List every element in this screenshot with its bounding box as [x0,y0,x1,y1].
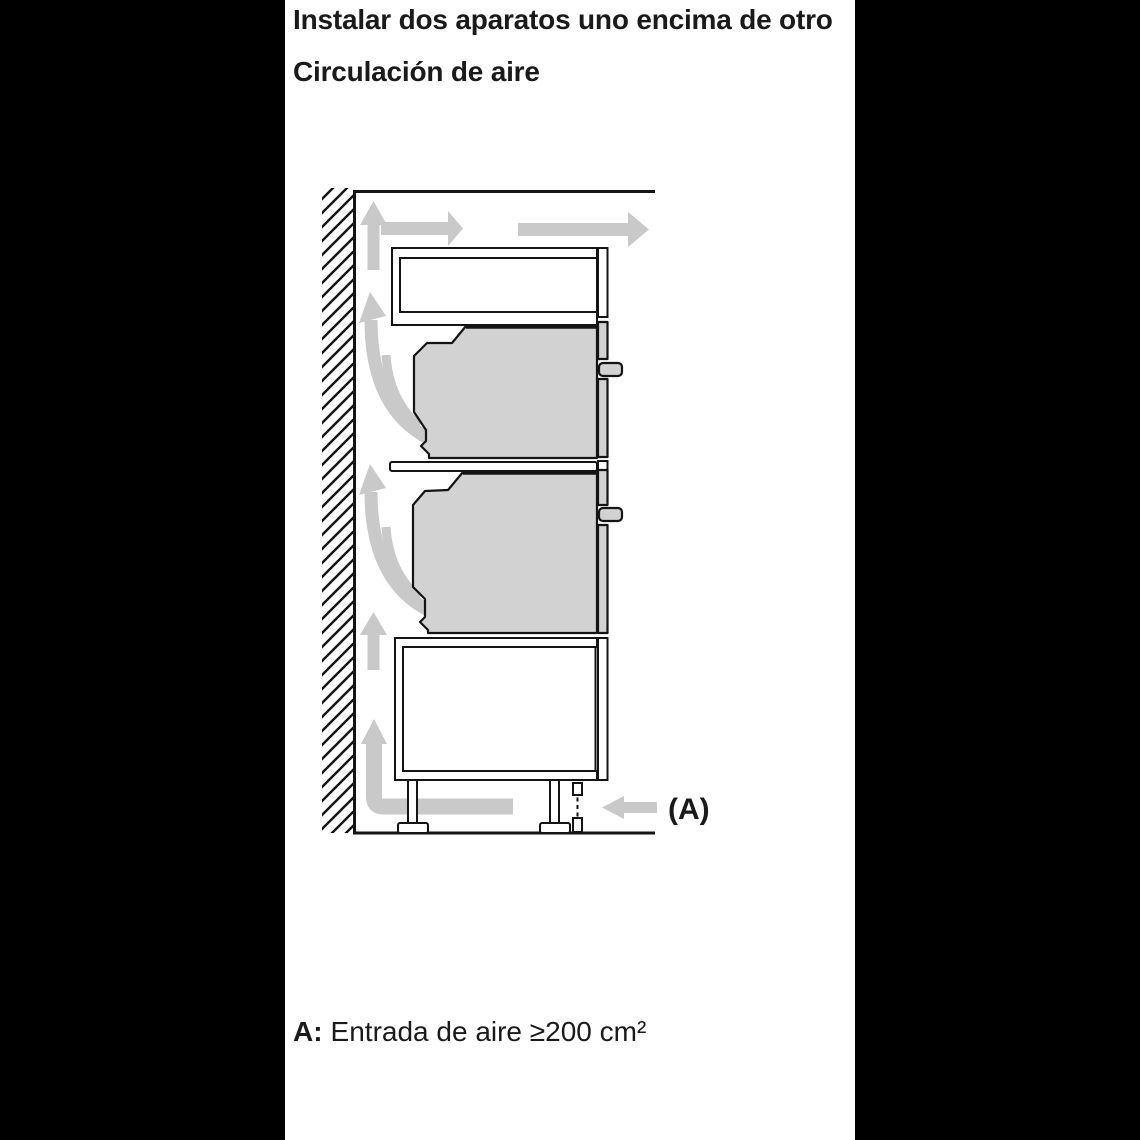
airflow-curve-upper-head [359,292,386,323]
right-black-bar [855,0,1140,1140]
cabinet-foot-right [540,823,570,833]
lower-appliance-door-bottom [598,525,608,633]
base-cabinet-front-frame [598,638,608,780]
middle-shelf [390,462,597,471]
top-cabinet [392,248,597,325]
caption-key: A: [293,1016,323,1047]
wall-hatching [322,188,355,833]
caption: A:Entrada de aire ≥200 cm² [293,1016,646,1048]
cabinet-foot-left [398,823,428,833]
airflow-curve-lower-head [359,464,386,495]
upper-appliance-door-bottom [598,379,608,457]
airflow-arrow-right-small [381,211,463,246]
airflow-arrow-up-middle [360,612,387,670]
page-content: Instalar dos aparatos uno encima de otro… [285,0,855,1140]
lower-appliance-knob [599,508,622,521]
air-inlet-marker-top [573,783,582,795]
airflow-arrow-up-top [360,201,387,270]
upper-appliance-door-top [598,322,608,359]
airflow-diagram: (A) [285,180,855,850]
upper-appliance [414,326,597,458]
manual-page: Instalar dos aparatos uno encima de otro… [0,0,1140,1140]
cabinet-leg-left [408,780,417,823]
airflow-arrow-right-long [518,212,649,247]
page-title: Instalar dos aparatos uno encima de otro [293,4,833,36]
cabinet-leg-right [550,780,559,823]
caption-text: Entrada de aire ≥200 cm² [331,1016,647,1047]
section-heading: Circulación de aire [293,56,540,88]
airflow-arrow-elbow-head [361,719,387,744]
air-inlet-label: (A) [668,793,710,826]
upper-appliance-knob [599,363,622,376]
air-inlet-marker-bottom [573,818,582,832]
left-black-bar [0,0,285,1140]
top-cabinet-front-frame [598,248,608,317]
lower-appliance [413,472,597,633]
base-cabinet [395,638,597,780]
air-inlet-arrow [602,796,657,819]
lower-appliance-door-top [598,470,608,505]
